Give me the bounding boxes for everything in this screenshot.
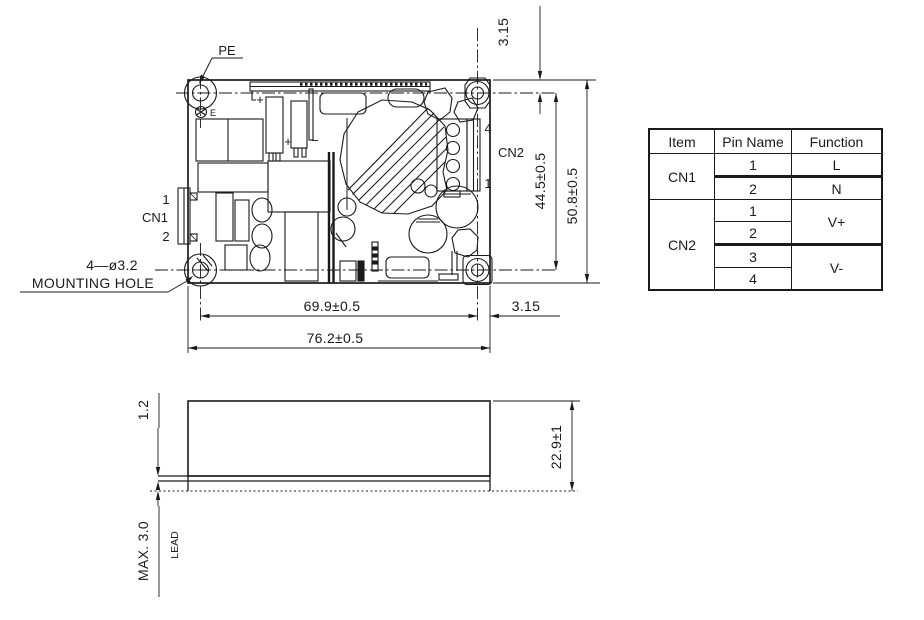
transformer <box>268 100 504 243</box>
header-pin-name: Pin Name <box>715 129 792 154</box>
cell-cn2-fn34: V- <box>792 245 883 291</box>
dim-hole-pitch-vertical: 44.5±0.5 <box>532 93 558 270</box>
pin-function-table: Item Pin Name Function CN1 1 L 2 N CN2 1… <box>648 128 883 291</box>
pe-label: PE <box>218 43 236 58</box>
cn1-pin1-label: 1 <box>162 192 169 207</box>
top-view <box>155 28 557 322</box>
cell-cn2-item: CN2 <box>649 200 715 291</box>
svg-text:76.2±0.5: 76.2±0.5 <box>307 330 364 346</box>
side-view-dimensions: 1.2 MAX. 3.0 LEAD 22.9±1 <box>135 393 580 597</box>
dim-hole-offset-top: 3.15 <box>495 6 542 114</box>
cell-cn1-pin2: 2 <box>715 177 792 200</box>
polarity-plus-2: + <box>284 134 292 149</box>
svg-text:3.15: 3.15 <box>495 18 511 46</box>
side-body <box>188 401 490 476</box>
cell-cn1-item: CN1 <box>649 154 715 200</box>
dim-board-height: 50.8±0.5 <box>564 80 589 283</box>
mechanical-drawing-page: PE E 1 CN1 2 4 CN2 1 + + − 4—ø3.2 MOUNTI… <box>0 0 924 620</box>
top-view-dimensions: 3.15 44.5±0.5 50.8±0.5 69.9±0.5 <box>188 6 600 353</box>
mounting-note-line1: 4—ø3.2 <box>86 257 138 273</box>
header-function: Function <box>792 129 883 154</box>
heatsink-bar <box>250 82 430 114</box>
mounting-note-line2: MOUNTING HOLE <box>32 275 154 291</box>
cn1-pin2-label: 2 <box>162 229 169 244</box>
cn2-pin4-label: 4 <box>484 121 491 136</box>
cn2-label: CN2 <box>498 145 524 160</box>
lead-label: LEAD <box>169 531 181 559</box>
cell-cn1-pin1: 1 <box>715 154 792 177</box>
bottom-middle-components <box>336 233 458 281</box>
cell-cn1-fn1: L <box>792 154 883 177</box>
polarity-minus: − <box>311 133 319 148</box>
table-header-row: Item Pin Name Function <box>649 129 882 154</box>
cell-cn1-fn2: N <box>792 177 883 200</box>
dim-hole-pitch-horizontal: 69.9±0.5 <box>201 298 478 318</box>
cell-cn2-pin1: 1 <box>715 200 792 222</box>
table-row: CN1 1 L <box>649 154 882 177</box>
dim-hole-offset-right: 3.15 <box>490 298 560 318</box>
cn1-label: CN1 <box>142 210 168 225</box>
pcb-mechanical-drawing: PE E 1 CN1 2 4 CN2 1 + + − 4—ø3.2 MOUNTI… <box>0 0 924 620</box>
cell-cn2-pin4: 4 <box>715 268 792 291</box>
dim-pcb-thickness: 1.2 <box>135 393 160 490</box>
isolation-barrier <box>329 118 347 283</box>
svg-text:3.15: 3.15 <box>512 298 540 314</box>
table-row: CN2 1 V+ <box>649 200 882 222</box>
cell-cn2-pin3: 3 <box>715 245 792 268</box>
svg-text:1.2: 1.2 <box>135 400 151 420</box>
dim-profile-height: 22.9±1 <box>493 401 580 491</box>
svg-text:MAX. 3.0: MAX. 3.0 <box>135 521 151 581</box>
side-view <box>150 401 578 491</box>
svg-text:50.8±0.5: 50.8±0.5 <box>564 168 580 225</box>
polarity-plus-1: + <box>256 92 264 107</box>
dim-lead-max: MAX. 3.0 LEAD <box>135 491 181 597</box>
cell-cn2-pin2: 2 <box>715 222 792 245</box>
cell-cn2-fn12: V+ <box>792 200 883 245</box>
input-capacitors <box>266 89 313 161</box>
dim-board-width: 76.2±0.5 <box>188 330 490 350</box>
header-item: Item <box>649 129 715 154</box>
svg-text:44.5±0.5: 44.5±0.5 <box>532 153 548 210</box>
svg-text:69.9±0.5: 69.9±0.5 <box>304 298 361 314</box>
cn2-pin1-label: 1 <box>484 176 491 191</box>
pe-terminal-symbol <box>196 107 207 118</box>
svg-text:22.9±1: 22.9±1 <box>548 425 564 470</box>
pe-terminal-label: E <box>210 108 216 118</box>
line-filter-blocks <box>196 119 330 281</box>
cn2-connector <box>437 119 480 197</box>
